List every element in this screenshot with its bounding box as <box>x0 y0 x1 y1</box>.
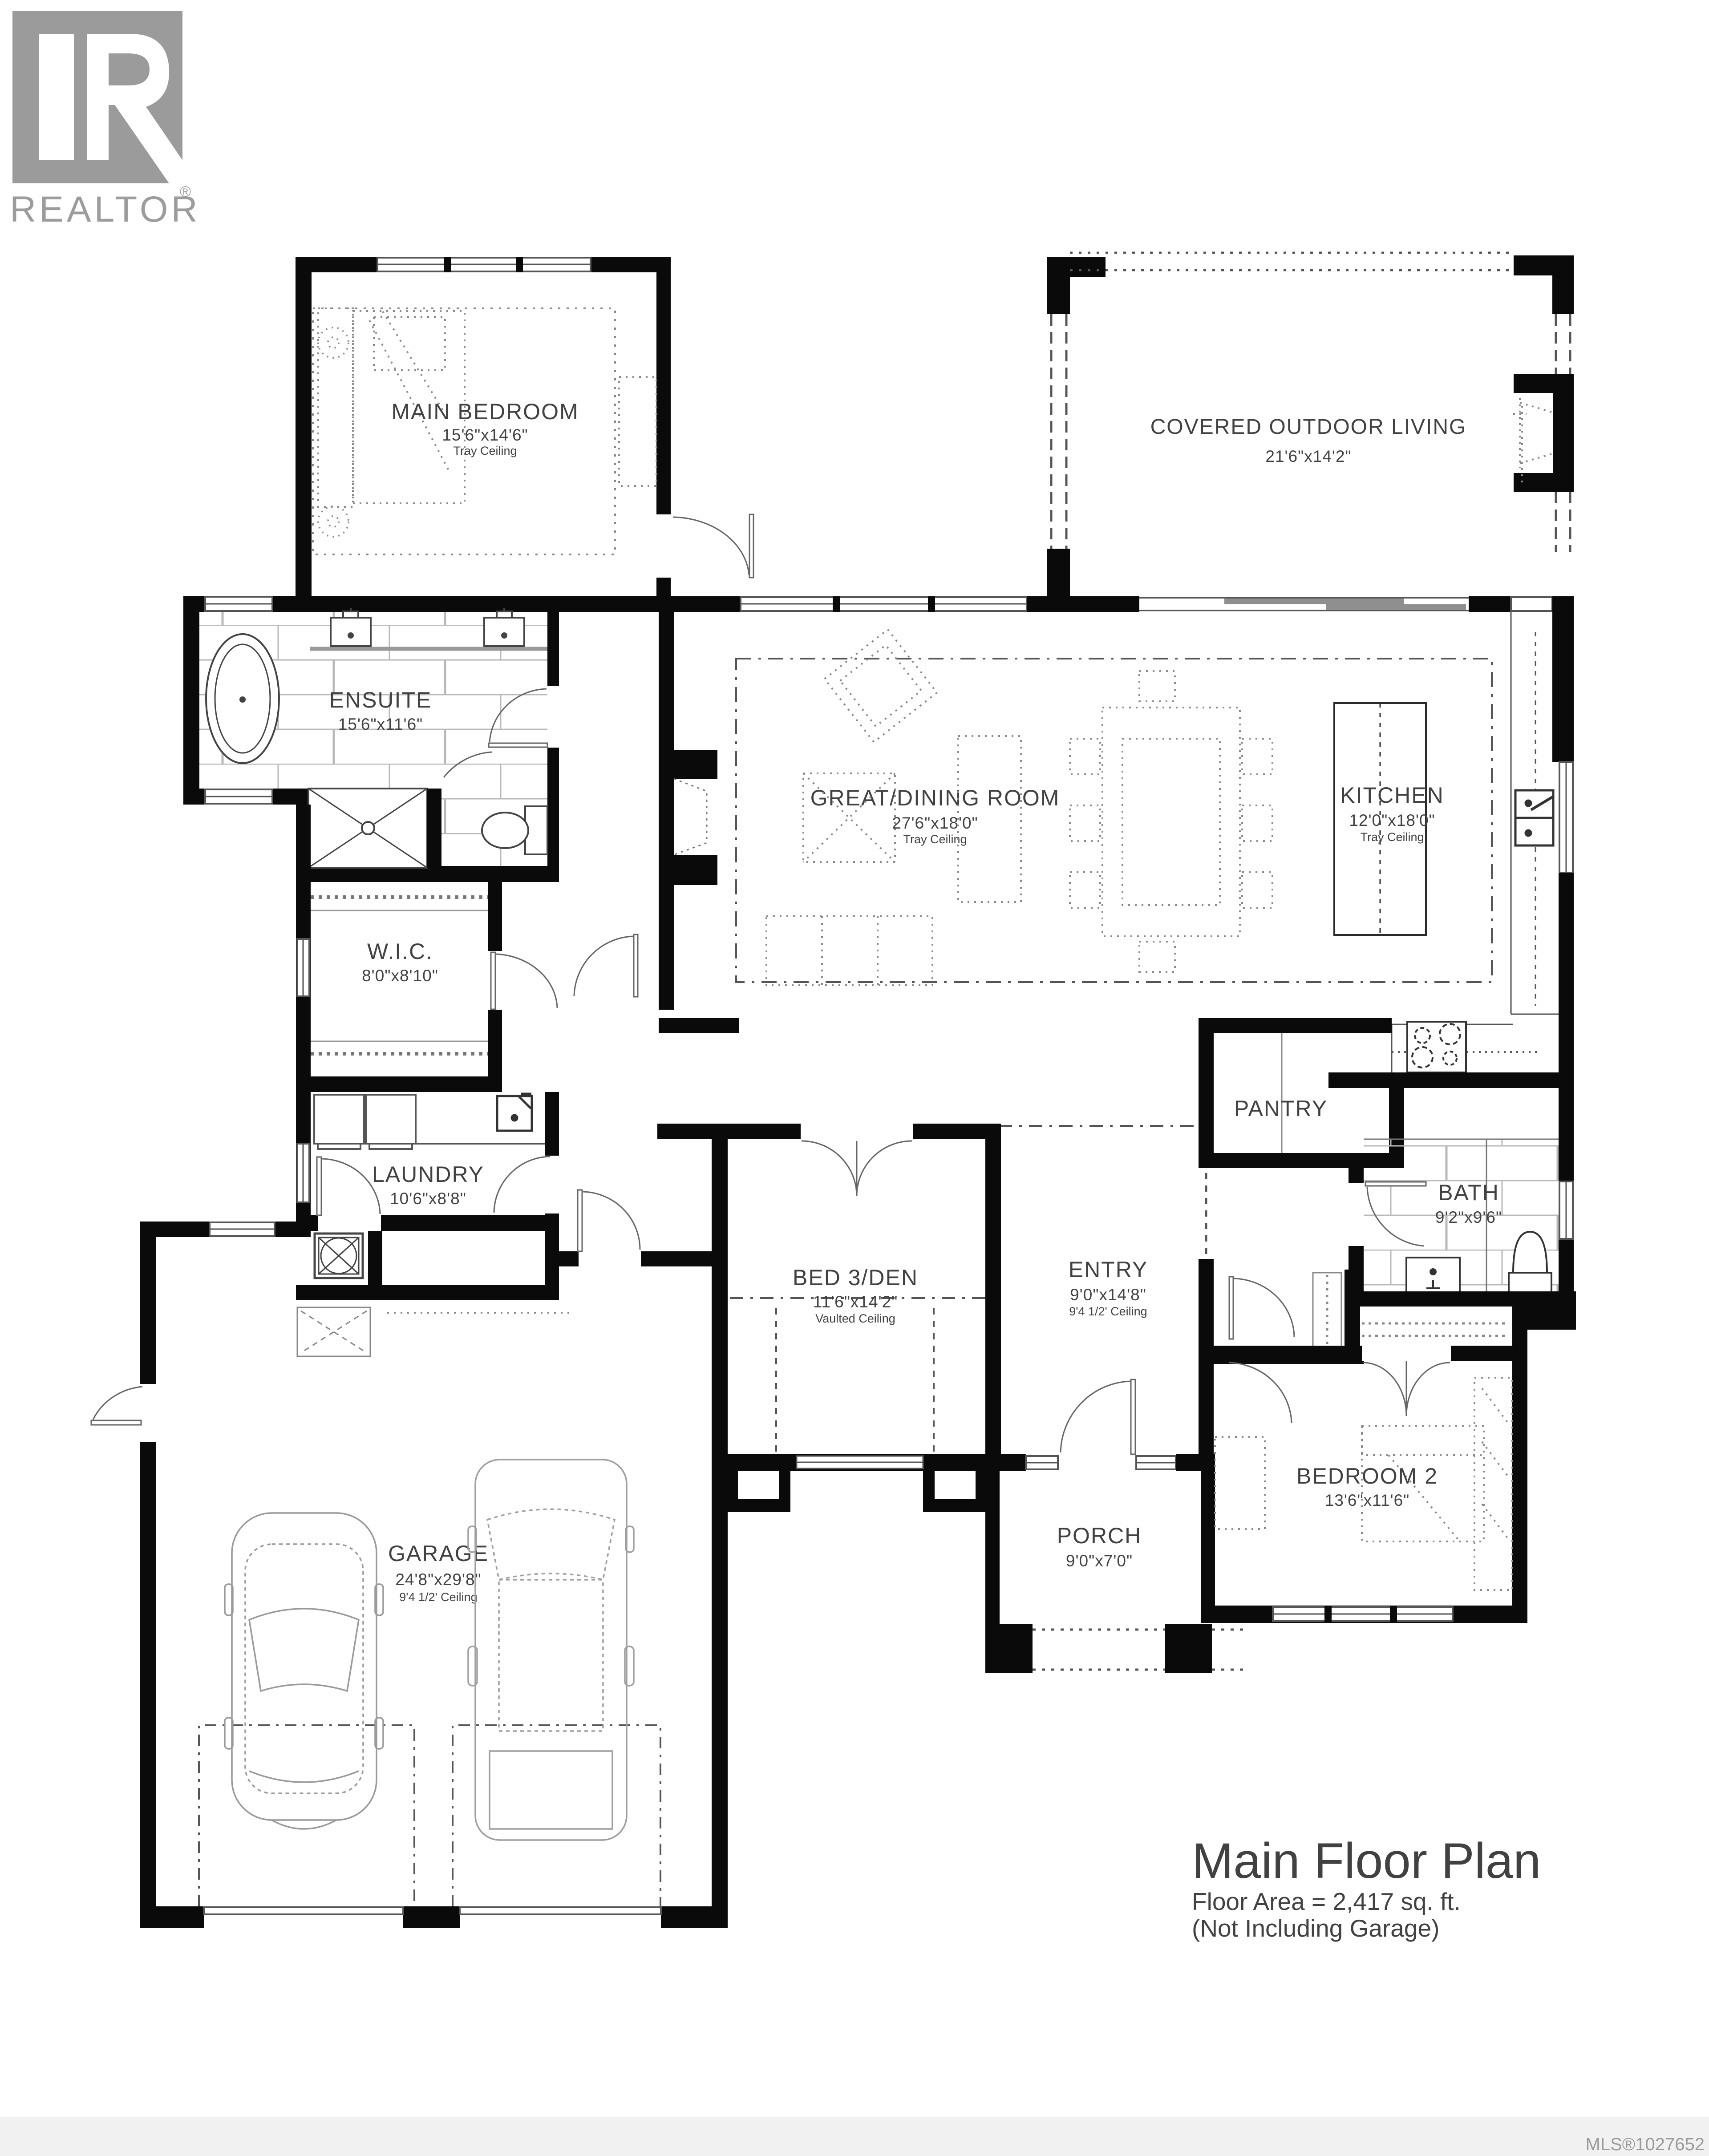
svg-text:13'6"x11'6": 13'6"x11'6" <box>1325 1491 1410 1509</box>
svg-text:Main Floor Plan: Main Floor Plan <box>1192 1833 1541 1889</box>
svg-text:12'0"x18'0": 12'0"x18'0" <box>1349 811 1435 829</box>
svg-text:21'6"x14'2": 21'6"x14'2" <box>1265 447 1351 465</box>
svg-text:Vaulted Ceiling: Vaulted Ceiling <box>815 1312 895 1325</box>
svg-text:ENTRY: ENTRY <box>1069 1257 1148 1282</box>
svg-text:BED 3/DEN: BED 3/DEN <box>793 1265 918 1290</box>
svg-text:Floor Area = 2,417 sq. ft.: Floor Area = 2,417 sq. ft. <box>1192 1888 1461 1915</box>
svg-text:15'6"x14'6": 15'6"x14'6" <box>442 426 528 444</box>
svg-text:COVERED OUTDOOR LIVING: COVERED OUTDOOR LIVING <box>1150 415 1467 439</box>
svg-text:PANTRY: PANTRY <box>1234 1096 1328 1121</box>
svg-text:9'0"x14'8": 9'0"x14'8" <box>1070 1286 1146 1304</box>
svg-text:27'6"x18'0": 27'6"x18'0" <box>892 814 978 832</box>
svg-text:BATH: BATH <box>1438 1180 1499 1205</box>
svg-text:W.I.C.: W.I.C. <box>367 939 433 964</box>
svg-text:9'4 1/2' Ceiling: 9'4 1/2' Ceiling <box>399 1590 477 1604</box>
svg-text:Tray Ceiling: Tray Ceiling <box>1360 830 1424 844</box>
svg-text:9'2"x9'6": 9'2"x9'6" <box>1435 1208 1502 1226</box>
svg-text:BEDROOM 2: BEDROOM 2 <box>1296 1464 1438 1489</box>
svg-text:Tray Ceiling: Tray Ceiling <box>453 444 517 457</box>
svg-text:ENSUITE: ENSUITE <box>329 688 432 712</box>
svg-text:11'6"x14'2": 11'6"x14'2" <box>813 1293 898 1311</box>
svg-text:GREAT/DINING ROOM: GREAT/DINING ROOM <box>810 785 1060 810</box>
svg-text:GARAGE: GARAGE <box>388 1541 489 1566</box>
svg-text:®: ® <box>180 183 191 200</box>
svg-text:KITCHEN: KITCHEN <box>1340 783 1444 808</box>
svg-text:9'4 1/2' Ceiling: 9'4 1/2' Ceiling <box>1069 1305 1147 1318</box>
svg-text:10'6"x8'8": 10'6"x8'8" <box>390 1189 466 1208</box>
svg-text:PORCH: PORCH <box>1057 1523 1142 1548</box>
svg-text:15'6"x11'6": 15'6"x11'6" <box>338 715 423 733</box>
svg-text:24'8"x29'8": 24'8"x29'8" <box>395 1570 481 1589</box>
svg-text:(Not Including Garage): (Not Including Garage) <box>1192 1914 1439 1942</box>
svg-text:8'0"x8'10": 8'0"x8'10" <box>362 967 438 985</box>
svg-text:MAIN BEDROOM: MAIN BEDROOM <box>391 399 579 424</box>
svg-text:LAUNDRY: LAUNDRY <box>372 1162 484 1187</box>
svg-text:MLS®1027652: MLS®1027652 <box>1586 2135 1705 2154</box>
svg-text:REALTOR: REALTOR <box>10 189 201 230</box>
svg-text:9'0"x7'0": 9'0"x7'0" <box>1066 1552 1133 1570</box>
